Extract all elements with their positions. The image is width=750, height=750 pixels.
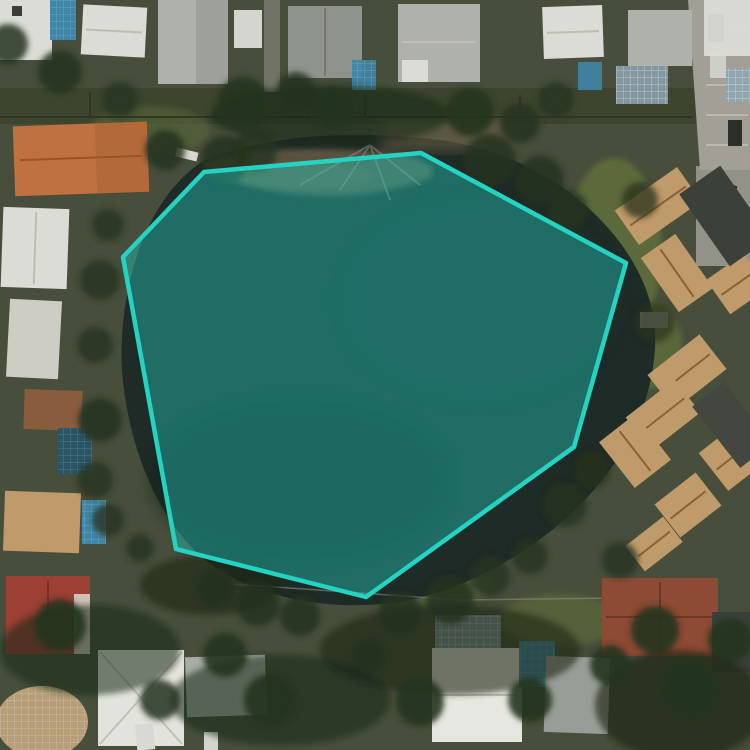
pool-screen — [616, 66, 668, 104]
tree — [236, 582, 280, 626]
pool-screen — [726, 68, 750, 102]
swimming-pool — [578, 62, 602, 90]
tree — [543, 483, 587, 527]
house-roof — [3, 491, 81, 554]
tree — [426, 576, 474, 624]
tree — [145, 130, 185, 170]
house-roof — [23, 389, 82, 431]
tree — [195, 568, 235, 608]
tree — [78, 398, 122, 442]
tree — [708, 618, 750, 662]
tree — [92, 209, 124, 241]
tree — [660, 660, 720, 720]
tree — [34, 599, 86, 651]
house — [81, 4, 148, 57]
porch-roof — [402, 60, 428, 82]
driveway — [264, 0, 280, 92]
roof-face — [196, 0, 228, 84]
tree — [508, 678, 552, 722]
tree — [244, 674, 296, 726]
tree — [446, 88, 494, 136]
roof-vent — [12, 6, 22, 16]
orange-tile-house — [13, 122, 149, 197]
tree — [280, 596, 320, 636]
tree — [203, 633, 247, 677]
tree — [470, 556, 510, 596]
house-roof — [704, 0, 750, 56]
tree — [352, 637, 388, 673]
tree — [38, 50, 82, 94]
tree — [635, 302, 675, 342]
tree — [276, 72, 316, 112]
tree — [574, 452, 610, 488]
tree — [378, 592, 422, 636]
tree — [140, 680, 180, 720]
tree — [396, 678, 444, 726]
house-roof — [234, 10, 262, 48]
tree — [77, 462, 113, 498]
tree — [126, 534, 154, 562]
tree — [80, 260, 120, 300]
pool-screen — [352, 60, 376, 90]
satellite-map-view — [0, 0, 750, 750]
pool-screen — [50, 0, 76, 40]
house — [1, 207, 70, 289]
car — [728, 120, 742, 146]
house-roof — [6, 299, 62, 380]
tree — [77, 327, 113, 363]
tree — [512, 538, 548, 574]
tree — [92, 504, 124, 536]
tree — [102, 82, 138, 118]
tree — [602, 542, 638, 578]
house — [6, 299, 62, 380]
house — [542, 5, 604, 59]
tree — [311, 86, 355, 130]
house-roof — [628, 10, 692, 66]
tree — [217, 77, 269, 129]
tree — [590, 645, 630, 685]
tree — [500, 103, 540, 143]
tree — [538, 82, 574, 118]
aerial-imagery — [0, 0, 750, 750]
tree — [631, 606, 679, 654]
car — [135, 723, 156, 750]
tree — [622, 182, 658, 218]
